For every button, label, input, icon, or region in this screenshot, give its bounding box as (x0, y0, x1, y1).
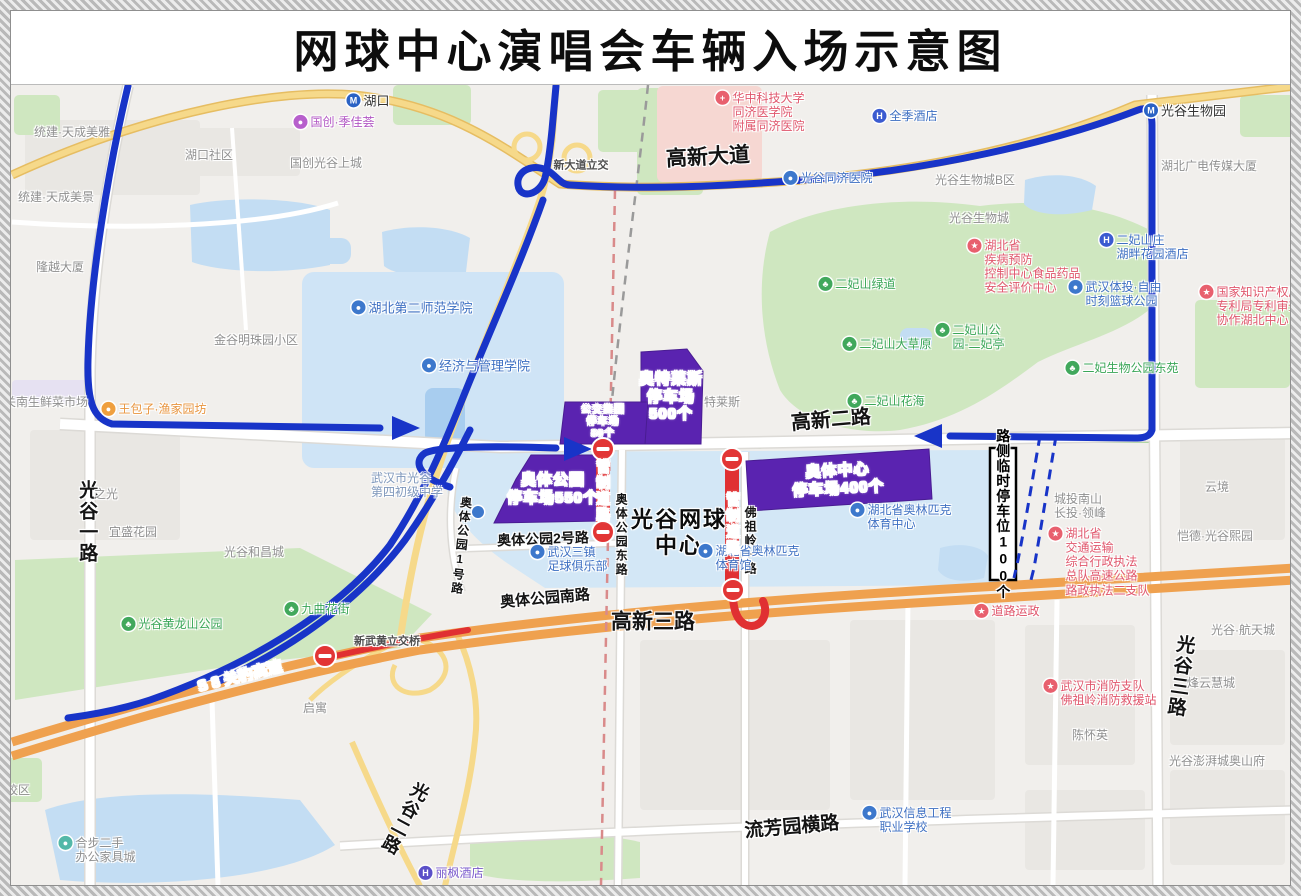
place-label: 烽云慧城 (1187, 676, 1235, 690)
title-band: 网球中心演唱会车辆入场示意图 (11, 11, 1290, 85)
place-label: 云境 (1205, 480, 1229, 494)
road-label: 奥体公园南路 (499, 586, 590, 611)
label-text: 华中科技大学同济医学院附属同济医院 (732, 91, 804, 133)
poi-label: M光谷生物园 (1144, 103, 1226, 118)
place-label: 光谷和昌城 (224, 545, 284, 559)
label-text: 光谷澎湃城奥山府 (1169, 754, 1265, 768)
place-label: 启寓 (303, 701, 327, 715)
label-text: 光谷生物园 (1161, 103, 1226, 118)
road-label: 光谷二路 (376, 778, 432, 859)
place-label: 关南生鲜菜市场 (4, 395, 88, 409)
gov-star-icon: ★ (1043, 679, 1057, 693)
label-text: 路侧临时停车位100个 (995, 429, 1012, 600)
place-label: 湖北广电传媒大厦 (1161, 159, 1257, 173)
place-label: 恺德·光谷熙园 (1177, 529, 1253, 543)
poi-label: ♣二妃山公园-二妃亭 (936, 323, 1005, 351)
label-text: 光谷和昌城 (224, 545, 284, 559)
label-text: 二妃山花海 (864, 394, 924, 408)
parking-zone-label: 公交集团停车场80个 (581, 404, 625, 439)
poi-dot-icon: ● (862, 806, 876, 820)
gov-star-icon: ★ (967, 239, 981, 253)
poi-label: ♣九曲花街 (284, 602, 349, 616)
label-text: 丽枫酒店 (435, 866, 483, 880)
label-text: 新武黄立交桥 (354, 636, 420, 649)
poi-dot-icon: ♣ (847, 394, 861, 408)
label-text: 城投南山长投·领峰 (1054, 492, 1106, 520)
place-label: 光谷生物城 (949, 211, 1009, 225)
hospital-cross-icon: + (715, 91, 729, 105)
poi-label: ●经济与管理学院 (422, 358, 530, 373)
poi-dot-icon: ♣ (1065, 361, 1079, 375)
label-text: 道路运政 (991, 604, 1039, 618)
label-text: 光谷·航天城 (1211, 623, 1275, 637)
poi-label: M湖口 (346, 93, 389, 108)
label-text: 奥体公园1号路 (449, 496, 474, 597)
label-text: 国创·季佳荟 (311, 115, 375, 129)
poi-label: ★国家知识产权局专利局专利审查协作湖北中心 (1199, 285, 1300, 327)
label-text: 湖口社区 (185, 148, 233, 162)
label-text: 湖北省疾病预防控制中心食品药品安全评价中心 (984, 239, 1080, 296)
poi-label: H全季酒店 (872, 109, 937, 123)
label-text: 启寓 (303, 701, 327, 715)
poi-label: ●武汉体投·自由时刻篮球公园 (1069, 280, 1162, 308)
label-text: S 8 关豹高速 (196, 658, 284, 696)
label-text: 奥体公园南路 (499, 586, 590, 611)
hotel-icon: H (418, 866, 432, 880)
poi-dot-icon: ♣ (842, 337, 856, 351)
poi-label: ●湖北省奥林匹克体育馆 (698, 544, 799, 572)
place-label: 特莱斯 (704, 395, 740, 409)
label-text: 二妃山公园-二妃亭 (953, 323, 1005, 351)
label-text: 九曲花街 (301, 602, 349, 616)
road-label: 高新大道 (665, 143, 750, 172)
label-text: 奥体中心停车场400个 (791, 460, 885, 500)
road-label: 流芳园横路 (744, 813, 841, 844)
poi-label: H二妃山庄湖畔花园酒店 (1099, 233, 1188, 261)
label-text: 奥体公园停车场550个 (507, 471, 599, 506)
poi-dot-icon: ● (850, 503, 864, 517)
poi-dot-icon: ♣ (284, 602, 298, 616)
label-text: 新大道立交 (554, 160, 609, 173)
road-label: 高新三路 (611, 611, 695, 636)
label-text: 合步二手办公家具城 (75, 836, 135, 864)
label-text: 高新二路 (790, 406, 872, 436)
label-text: 光谷生物城 (949, 211, 1009, 225)
place-label: 光谷澎湃城奥山府 (1169, 754, 1265, 768)
place-label: 湖口社区 (185, 148, 233, 162)
poi-dot-icon: ● (530, 545, 544, 559)
poi-label: ♣光谷黄龙山公园 (121, 617, 222, 631)
label-text: 经济与管理学院 (439, 358, 530, 373)
bus-stop-icon (472, 506, 484, 518)
label-text: 宜盛花园 (109, 525, 157, 539)
label-text: 二妃山大草原 (859, 337, 931, 351)
label-text: 流芳园横路 (744, 813, 841, 844)
poi-label: H丽枫酒店 (418, 866, 483, 880)
road-label: 新武黄立交桥 (354, 636, 420, 649)
control-road-label: 管制道路 (725, 492, 742, 556)
label-text: 湖北省交通运输综合行政执法总队高速公路路政执法二支队 (1065, 527, 1149, 598)
label-text: 高新三路 (611, 611, 695, 636)
place-label: 城投南山长投·领峰 (1054, 492, 1106, 520)
poi-dot-icon: ● (58, 836, 72, 850)
label-text: 烽云慧城 (1187, 676, 1235, 690)
label-text: 管制道路 (595, 459, 612, 523)
page-title: 网球中心演唱会车辆入场示意图 (293, 15, 1007, 80)
label-text: 武汉市消防支队佛祖岭消防救援站 (1060, 679, 1156, 707)
label-text: 王包子·渔家园坊 (119, 402, 207, 416)
label-text: 关南生鲜菜市场 (4, 395, 88, 409)
poi-label: ★武汉市消防支队佛祖岭消防救援站 (1043, 679, 1156, 707)
label-text: 云境 (1205, 480, 1229, 494)
poi-label: ●湖北第二师范学院 (351, 300, 472, 315)
poi-dot-icon: ● (351, 300, 365, 314)
label-text: 特莱斯 (704, 395, 740, 409)
label-text: 管制道路 (725, 492, 742, 556)
control-road-label: 管制道路 (595, 459, 612, 523)
label-text: 湖北省奥林匹克体育中心 (867, 503, 951, 531)
label-text: 二妃生物公园东苑 (1082, 361, 1178, 375)
map-labels-layer: 高新大道高新二路高新三路奥体公园南路奥体公园2号路奥体公园东路奥体公园1号路佛祖… (0, 0, 1301, 896)
poi-dot-icon: ♣ (121, 617, 135, 631)
poi-label: ●王包子·渔家园坊 (102, 402, 207, 416)
label-text: 光谷黄龙山公园 (138, 617, 222, 631)
poi-label: ●武汉三镇足球俱乐部 (530, 545, 607, 573)
poi-label: ★道路运政 (974, 604, 1039, 618)
poi-dot-icon: ♣ (818, 277, 832, 291)
label-text: 之光 (94, 487, 118, 501)
label-text: 国创光谷上城 (290, 156, 362, 170)
label-text: 全季酒店 (889, 109, 937, 123)
label-text: 陈怀英 (1072, 728, 1108, 742)
metro-icon: M (1144, 103, 1158, 117)
parking-zone-label: 奥体中心停车场400个 (791, 460, 885, 500)
metro-icon: M (346, 93, 360, 107)
poi-label: ★湖北省疾病预防控制中心食品药品安全评价中心 (967, 239, 1080, 296)
poi-label: ♣二妃山花海 (847, 394, 924, 408)
label-text: 光谷同济医院 (800, 171, 872, 185)
road-label: 奥体公园东路 (614, 493, 628, 577)
poi-label: ●武汉信息工程职业学校 (862, 806, 951, 834)
road-label: 奥体公园1号路 (449, 496, 474, 597)
place-label: 统建·天成美雅 (34, 125, 110, 139)
road-label: 新大道立交 (554, 160, 609, 173)
hotel-icon: H (1099, 233, 1113, 247)
poi-label: ♣二妃山绿道 (818, 277, 895, 291)
place-label: 武汉市光谷第四初级中学 (371, 471, 443, 499)
label-text: 二妃山绿道 (835, 277, 895, 291)
parking-zone-label: 奥体公园停车场550个 (507, 471, 599, 506)
place-label: 之光 (94, 487, 118, 501)
place-label: 金谷明珠园小区 (214, 333, 298, 347)
label-text: 武汉信息工程职业学校 (879, 806, 951, 834)
label-text: 湖口 (363, 93, 389, 108)
label-text: 公交集团停车场80个 (581, 404, 625, 439)
place-label: 隆越大厦 (36, 260, 84, 274)
label-text: 湖北广电传媒大厦 (1161, 159, 1257, 173)
label-text: 国家知识产权局专利局专利审查协作湖北中心 (1216, 285, 1300, 327)
poi-label: ●合步二手办公家具城 (58, 836, 135, 864)
place-label: 光谷·航天城 (1211, 623, 1275, 637)
hotel-icon: H (872, 109, 886, 123)
gov-star-icon: ★ (1199, 285, 1213, 299)
poi-label: ●光谷同济医院 (783, 171, 872, 185)
place-label: 统建·天成美景 (18, 190, 94, 204)
label-text: 湖北第二师范学院 (368, 300, 472, 315)
label-text: 光谷二路 (376, 778, 432, 859)
label-text: 校区 (6, 783, 30, 797)
road-label: S 8 关豹高速 (196, 658, 284, 696)
poi-label: ●湖北省奥林匹克体育中心 (850, 503, 951, 531)
poi-label: ♣二妃生物公园东苑 (1065, 361, 1178, 375)
poi-dot-icon: ♣ (936, 323, 950, 337)
poi-dot-icon: ● (698, 544, 712, 558)
label-text: 恺德·光谷熙园 (1177, 529, 1253, 543)
poi-dot-icon: ● (422, 358, 436, 372)
label-text: 金谷明珠园小区 (214, 333, 298, 347)
label-text: 武汉市光谷第四初级中学 (371, 471, 443, 499)
label-text: 光谷生物城B区 (935, 173, 1015, 187)
label-text: 武汉三镇足球俱乐部 (547, 545, 607, 573)
place-label: 光谷生物城B区 (935, 173, 1015, 187)
label-text: 高新大道 (665, 143, 750, 172)
roadside-parking-label: 路侧临时停车位100个 (995, 429, 1012, 600)
label-text: 武汉体投·自由时刻篮球公园 (1086, 280, 1162, 308)
gov-star-icon: ★ (974, 604, 988, 618)
place-label: 校区 (6, 783, 30, 797)
road-label: 高新二路 (790, 406, 872, 436)
label-text: 统建·天成美景 (18, 190, 94, 204)
poi-dot-icon: ● (783, 171, 797, 185)
poi-label: ♣二妃山大草原 (842, 337, 931, 351)
parking-zone-label: 奥特莱斯停车场500个 (639, 370, 703, 423)
label-text: 奥体公园东路 (614, 493, 628, 577)
label-text: 二妃山庄湖畔花园酒店 (1116, 233, 1188, 261)
poi-dot-icon: ● (102, 402, 116, 416)
place-label: 宜盛花园 (109, 525, 157, 539)
poi-label: ●国创·季佳荟 (294, 115, 375, 129)
label-text: 奥特莱斯停车场500个 (639, 370, 703, 423)
place-label: 陈怀英 (1072, 728, 1108, 742)
place-label: 国创光谷上城 (290, 156, 362, 170)
traffic-diagram: 高新大道高新二路高新三路奥体公园南路奥体公园2号路奥体公园东路奥体公园1号路佛祖… (0, 0, 1301, 896)
label-text: 统建·天成美雅 (34, 125, 110, 139)
poi-label: +华中科技大学同济医学院附属同济医院 (715, 91, 804, 133)
label-text: 隆越大厦 (36, 260, 84, 274)
poi-dot-icon: ● (294, 115, 308, 129)
poi-label: ★湖北省交通运输综合行政执法总队高速公路路政执法二支队 (1048, 527, 1149, 598)
gov-star-icon: ★ (1048, 527, 1062, 541)
